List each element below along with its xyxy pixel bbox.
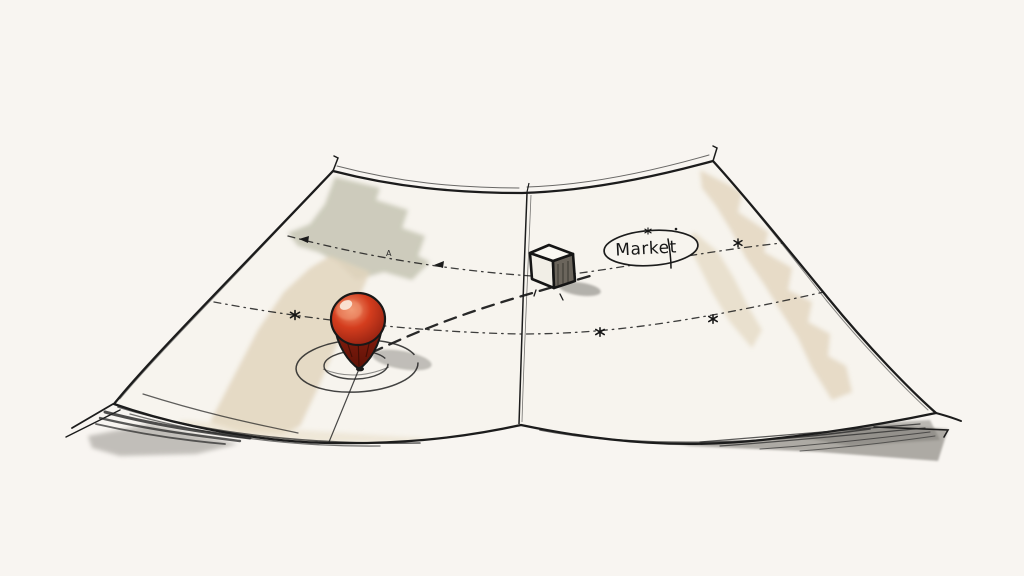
waypoint-letter: A: [386, 249, 392, 258]
pin-foot: [356, 367, 364, 372]
map-sketch: A Market: [0, 0, 1024, 576]
sketch-canvas: A Market: [0, 0, 1024, 576]
dot-marker: [675, 228, 678, 231]
pin-ball: [331, 293, 385, 345]
